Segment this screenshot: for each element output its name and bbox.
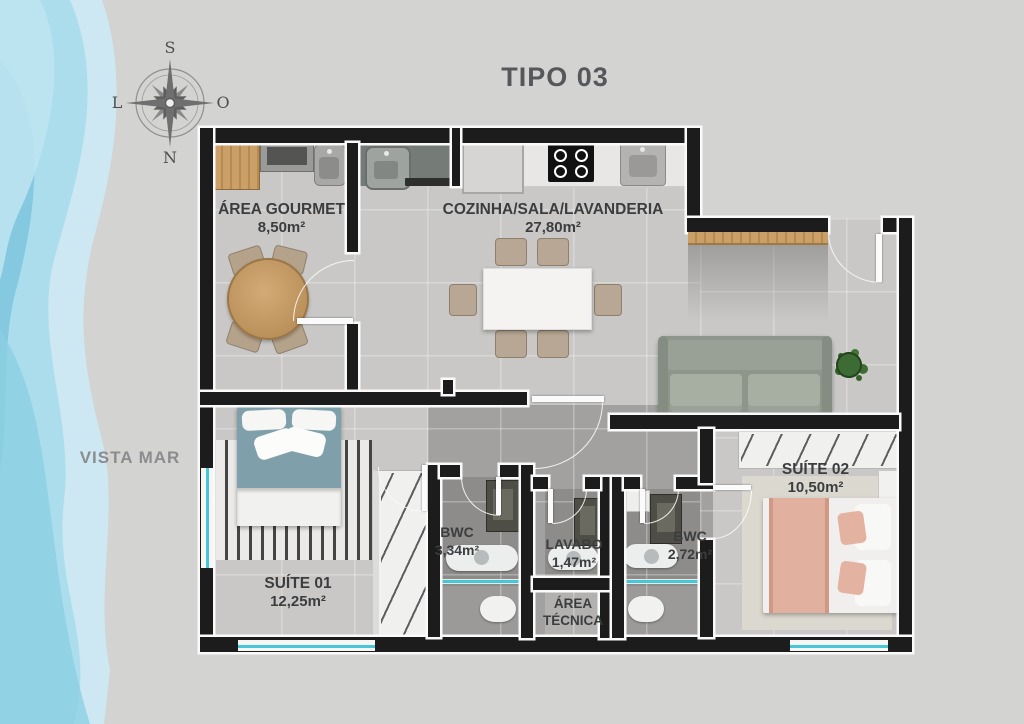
sofa-arm	[658, 336, 668, 416]
dining-chair	[449, 284, 477, 316]
counter-appliance	[405, 178, 455, 186]
door-leaf	[297, 318, 353, 324]
wall	[687, 218, 828, 232]
vanity-basin	[580, 506, 595, 535]
dining-chair	[495, 238, 527, 266]
faucet	[327, 149, 332, 154]
room-name: SUÍTE 02	[748, 460, 883, 479]
compass-label-west: O	[216, 93, 229, 112]
double-bed	[763, 498, 898, 613]
pillow	[242, 409, 287, 431]
wall	[521, 465, 533, 638]
floor-plan-page: { "page": { "title": "TIPO 03", "side_la…	[0, 0, 1024, 724]
room-area: 2,72m²	[655, 546, 725, 564]
grill-counter	[260, 140, 314, 172]
dining-chair	[537, 238, 569, 266]
grill-surface	[267, 147, 307, 165]
burner	[554, 149, 567, 162]
potted-plant	[836, 352, 862, 378]
room-area: 8,50m²	[194, 219, 369, 238]
wall	[200, 128, 700, 143]
fridge	[462, 138, 524, 194]
bed-blanket	[769, 498, 829, 613]
dining-chair	[537, 330, 569, 358]
bed-foot-blanket	[237, 488, 341, 526]
room-label-suite-01: SUÍTE 01 12,25m²	[233, 574, 363, 612]
compass-label-south: S	[165, 38, 176, 57]
burner	[575, 149, 588, 162]
toilet	[628, 596, 664, 622]
room-name: ÁREA TÉCNICA	[540, 596, 606, 630]
room-name: ÁREA GOURMET	[194, 200, 369, 219]
wall	[624, 477, 640, 489]
dining-chair	[495, 330, 527, 358]
faucet	[640, 147, 645, 152]
burner	[575, 165, 588, 178]
wall	[533, 477, 548, 489]
room-area: 12,25m²	[233, 593, 363, 612]
pillow	[837, 560, 867, 595]
window-glass	[238, 645, 375, 648]
room-label-area-gourmet: ÁREA GOURMET 8,50m²	[194, 200, 369, 238]
wall	[533, 578, 612, 590]
room-name: BWC	[655, 528, 725, 546]
wall	[443, 380, 453, 394]
wall	[440, 465, 460, 477]
sofa-cushion	[670, 374, 742, 412]
sofa	[658, 336, 832, 416]
room-area: 10,50m²	[748, 479, 883, 498]
pillow	[837, 510, 867, 545]
door-leaf	[532, 396, 604, 402]
window	[238, 640, 375, 651]
wood-cabinet	[213, 140, 260, 190]
room-label-bwc-1: BWC 3,34m²	[422, 524, 492, 559]
door-leaf	[640, 489, 645, 523]
sink-basin	[319, 157, 339, 179]
dining-chair	[594, 284, 622, 316]
door-leaf	[422, 465, 427, 511]
page-title: TIPO 03	[430, 62, 680, 93]
window-glass	[206, 468, 209, 568]
faucet	[384, 151, 389, 156]
wall	[452, 128, 460, 186]
dining-table	[483, 268, 592, 330]
room-area: 27,80m²	[433, 219, 673, 238]
room-name: LAVABO	[536, 536, 612, 554]
sofa-cushion	[748, 374, 820, 412]
room-name: SUÍTE 01	[233, 574, 363, 593]
cooktop	[548, 144, 594, 182]
compass-label-north: N	[163, 148, 177, 166]
bar-shadow	[688, 243, 828, 321]
window	[201, 468, 213, 568]
room-label-suite-02: SUÍTE 02 10,50m²	[748, 460, 883, 498]
sofa-back	[666, 340, 824, 370]
wall	[200, 392, 527, 405]
door-leaf	[496, 477, 501, 515]
toilet	[480, 596, 516, 622]
shower-glass	[626, 580, 698, 583]
room-label-bwc-2: BWC 2,72m²	[655, 528, 725, 563]
room-name: BWC	[422, 524, 492, 542]
wall	[687, 128, 700, 232]
laundry-tank	[620, 142, 666, 186]
wall	[612, 477, 624, 638]
room-label-lavabo: LAVABO 1,47m²	[536, 536, 612, 571]
wall	[899, 218, 912, 652]
window-glass	[790, 645, 888, 648]
shower-glass	[442, 580, 520, 583]
burner	[554, 165, 567, 178]
wall	[700, 429, 713, 483]
floor-plan: ÁREA GOURMET 8,50m² COZINHA/SALA/LAVANDE…	[200, 128, 912, 652]
vista-mar-label: VISTA MAR	[70, 448, 190, 468]
door-leaf	[713, 485, 751, 490]
entry-door-leaf	[876, 234, 882, 282]
wall	[585, 477, 600, 489]
wall	[347, 324, 358, 392]
room-label-area-tecnica: ÁREA TÉCNICA	[540, 596, 606, 630]
room-area: 3,34m²	[422, 542, 492, 560]
gourmet-sink	[314, 144, 346, 186]
tank-basin	[629, 155, 657, 177]
pillow	[283, 426, 328, 459]
room-name: COZINHA/SALA/LAVANDERIA	[433, 200, 673, 219]
double-bed	[237, 406, 341, 526]
room-label-cozinha-sala-lavanderia: COZINHA/SALA/LAVANDERIA 27,80m²	[433, 200, 673, 238]
door-leaf	[548, 489, 553, 523]
window	[790, 640, 888, 651]
compass-label-east: L	[112, 93, 123, 112]
bar-counter	[688, 232, 828, 245]
room-area: 1,47m²	[536, 554, 612, 572]
sink-basin	[374, 161, 398, 179]
sofa-arm	[822, 336, 832, 416]
wall	[610, 415, 899, 429]
